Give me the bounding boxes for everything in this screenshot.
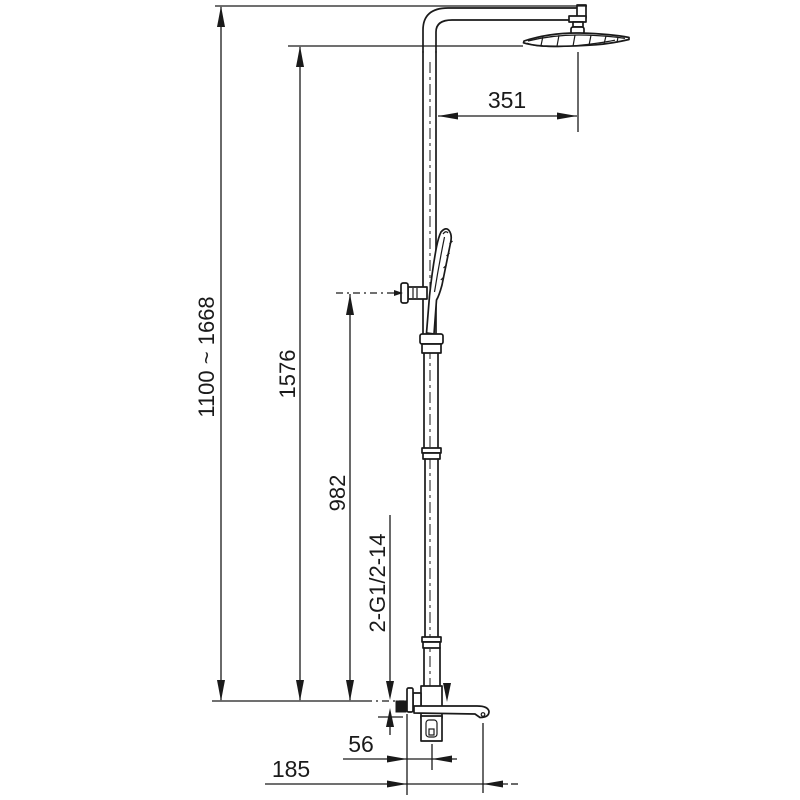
overall-height-arrow-top: [217, 6, 225, 27]
spout-reach-arrow-right: [483, 781, 503, 788]
dim-arm-reach-label: 351: [488, 87, 526, 113]
dimension-annotations: 1100 ~ 1668 1576 982 2-G1/2-14 351: [194, 6, 587, 795]
dim-column-height-label: 1576: [275, 350, 300, 399]
dim-connection-thread-label: 2-G1/2-14: [365, 533, 390, 632]
head-flange: [569, 16, 586, 22]
valve-knob: [407, 688, 413, 712]
union-collar-1b: [423, 453, 440, 459]
column-height-arrow-top: [296, 46, 304, 67]
hand-shower-arrow-top: [346, 294, 354, 315]
union-collar-2b: [423, 642, 440, 648]
inlet-arrow-right: [443, 683, 451, 702]
dim-overall-height-label: 1100 ~ 1668: [194, 296, 219, 417]
drawing-canvas: 1100 ~ 1668 1576 982 2-G1/2-14 351: [0, 0, 800, 800]
mixer-valve: [396, 683, 489, 741]
diverter-handle: [396, 701, 406, 712]
slider-bracket: [420, 334, 443, 353]
shower-head: [524, 33, 630, 47]
valve-spout-arrow-left: [387, 756, 407, 763]
bracket-upper: [420, 334, 443, 344]
arm-reach-arrow-right: [557, 113, 577, 120]
hand-shower-arrow-bottom: [346, 680, 354, 701]
thread-arrow-down: [386, 681, 394, 700]
overall-height-arrow-bottom: [217, 680, 225, 701]
arm-reach-arrow-left: [438, 113, 458, 120]
valve-spout-arrow-right: [432, 756, 452, 763]
spout-reach-arrow-left: [387, 781, 407, 788]
dim-spout-reach-label: 185: [272, 756, 310, 782]
valve-stem: [413, 693, 421, 707]
dim-valve-spout-label: 56: [348, 731, 374, 757]
column-height-arrow-bottom: [296, 680, 304, 701]
technical-drawing: 1100 ~ 1668 1576 982 2-G1/2-14 351: [0, 0, 800, 800]
dim-hand-shower-label: 982: [325, 475, 350, 512]
bracket-lower: [422, 344, 441, 353]
